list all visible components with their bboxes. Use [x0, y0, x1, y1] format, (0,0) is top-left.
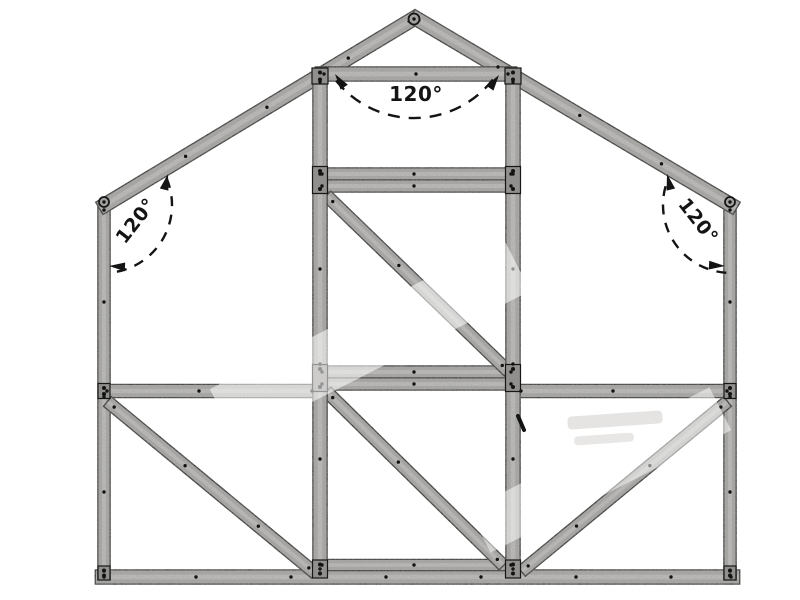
rivet	[397, 264, 400, 267]
bolt	[728, 574, 732, 578]
rivet	[307, 566, 310, 569]
rivet	[414, 72, 417, 75]
rivet	[318, 457, 321, 460]
rivet	[511, 567, 514, 570]
rivet	[412, 370, 415, 373]
rivet	[265, 106, 268, 109]
rivet	[184, 155, 187, 158]
bolt	[102, 574, 106, 578]
rivet	[611, 389, 614, 392]
bolt	[318, 71, 322, 75]
rivet	[322, 72, 325, 75]
rivet	[496, 558, 499, 561]
rivet	[331, 396, 334, 399]
bolt	[318, 78, 322, 82]
rivet	[105, 389, 108, 392]
rivet	[728, 208, 731, 211]
rivet	[384, 575, 387, 578]
rivet	[318, 267, 321, 270]
rivet	[574, 575, 577, 578]
rivet	[669, 575, 672, 578]
bolt	[318, 187, 322, 191]
hub-eave-right-pin	[728, 200, 731, 203]
rivet	[660, 162, 663, 165]
rivet	[479, 575, 482, 578]
bolt	[318, 169, 322, 173]
member-sheen-brace-door-lower	[327, 392, 503, 565]
diagram-page: 120°120°120°	[0, 0, 800, 600]
rivet	[102, 208, 105, 211]
bolt	[318, 572, 322, 576]
bolt	[728, 386, 732, 390]
bolt	[511, 187, 515, 191]
hub-eave-left-pin	[102, 200, 105, 203]
frame-diagram: 120°120°120°	[0, 0, 800, 600]
rivet	[526, 564, 529, 567]
bolt	[728, 392, 732, 396]
rivet	[412, 563, 415, 566]
bolt	[511, 367, 515, 371]
hub-apex-pin	[412, 17, 415, 20]
angle-ridge-label: 120°	[389, 82, 443, 106]
rivet	[102, 490, 105, 493]
rivet	[501, 364, 504, 367]
rivet	[257, 524, 260, 527]
bolt	[102, 392, 106, 396]
rivet	[412, 382, 415, 385]
rivet	[397, 460, 400, 463]
bolt	[511, 169, 515, 173]
bolt	[511, 71, 515, 75]
rivet	[183, 464, 186, 467]
rivet	[289, 575, 292, 578]
rivet	[331, 200, 334, 203]
rivet	[578, 114, 581, 117]
rivet	[347, 56, 350, 59]
rivet	[318, 567, 321, 570]
bolt	[102, 569, 106, 573]
rivet	[412, 184, 415, 187]
rivet	[728, 490, 731, 493]
rivet	[725, 389, 728, 392]
rivet	[194, 575, 197, 578]
bolt	[728, 569, 732, 573]
angle-eave-left-arrowhead	[109, 262, 125, 272]
rivet	[102, 300, 105, 303]
rivet	[575, 524, 578, 527]
bolt	[511, 78, 515, 82]
rivet	[112, 405, 115, 408]
angle-eave-right-arrowhead	[709, 261, 725, 271]
rivet	[496, 65, 499, 68]
bolt	[318, 563, 322, 567]
member-sheen-brace-left-bay	[108, 402, 315, 573]
bolt	[511, 385, 515, 389]
bolt	[511, 572, 515, 576]
rivet	[197, 389, 200, 392]
rivet	[511, 457, 514, 460]
rivet	[412, 172, 415, 175]
bolt	[511, 563, 515, 567]
bolt	[102, 386, 106, 390]
rivet	[506, 72, 509, 75]
rivet	[511, 362, 514, 365]
rivet	[728, 300, 731, 303]
rivet	[519, 389, 522, 392]
